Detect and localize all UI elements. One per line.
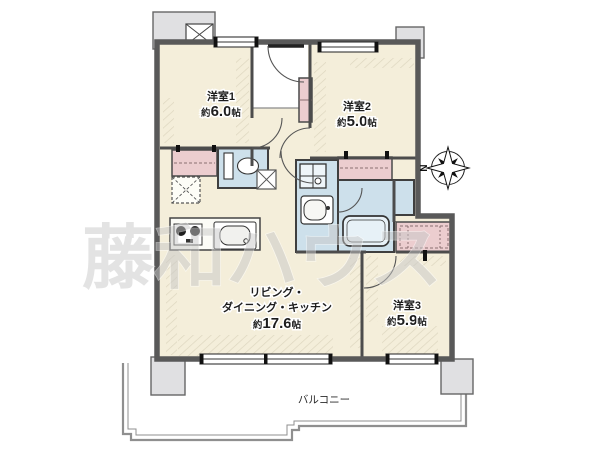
room1-name: 洋室1 xyxy=(207,89,235,103)
window-room1-top xyxy=(214,37,258,47)
window-room3-balcony xyxy=(386,354,438,364)
washing-machine-icon xyxy=(300,164,326,188)
room3-name: 洋室3 xyxy=(393,298,421,312)
meter-box-icon xyxy=(257,170,276,189)
floor-plan-image: N 藤和ハウス 洋室1 約6.0帖 洋室2 約5.0帖 リビング・ ダイニング・… xyxy=(0,0,600,450)
window-room2-top xyxy=(318,42,378,52)
pipe-space-icon xyxy=(172,177,200,203)
floor-plan: N 藤和ハウス 洋室1 約6.0帖 洋室2 約5.0帖 リビング・ ダイニング・… xyxy=(0,0,600,450)
room2-name: 洋室2 xyxy=(343,99,371,113)
window-ldk-balcony xyxy=(200,354,332,364)
watermark-text: 藤和ハウス xyxy=(82,219,442,297)
compass-north-label: N xyxy=(419,164,430,171)
ldk-name-line1: リビング・ xyxy=(250,285,305,299)
ldk-name-line2: ダイニング・キッチン xyxy=(222,300,332,314)
balcony-label: バルコニー xyxy=(298,394,350,406)
compass-icon: N xyxy=(419,147,469,189)
